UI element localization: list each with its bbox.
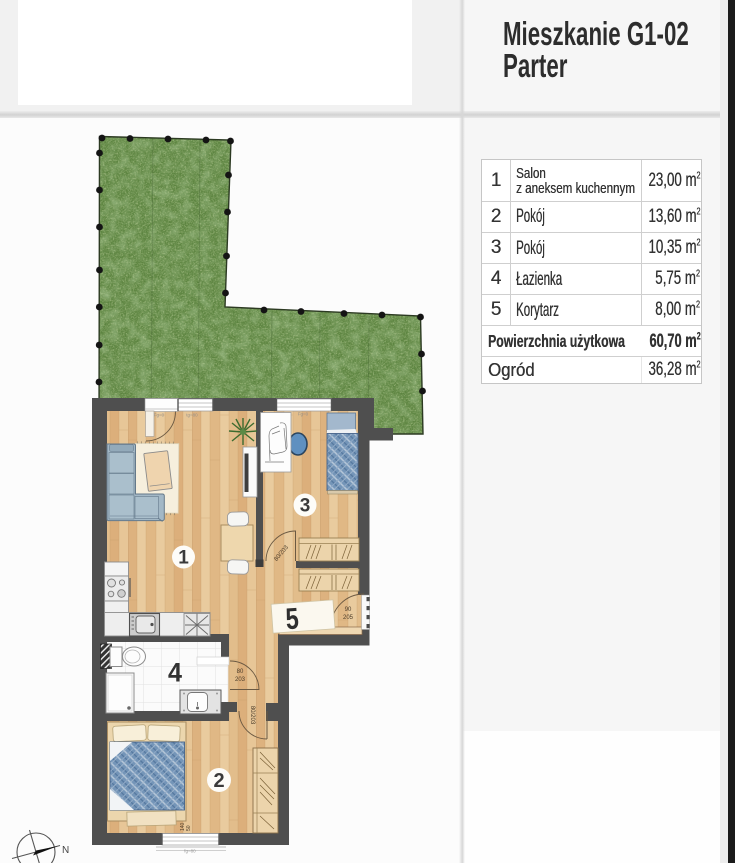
svg-text:80/203: 80/203 <box>249 706 255 725</box>
svg-text:Fg=0: Fg=0 <box>154 413 165 418</box>
svg-text:203: 203 <box>235 677 246 683</box>
svg-text:N: N <box>62 845 69 856</box>
svg-text:4: 4 <box>168 658 182 688</box>
svg-text:3: 3 <box>300 496 311 517</box>
svg-text:fg=80: fg=80 <box>184 849 196 854</box>
svg-text:5: 5 <box>285 602 300 636</box>
svg-text:205: 205 <box>343 615 354 621</box>
svg-text:80: 80 <box>237 669 244 675</box>
svg-text:1: 1 <box>178 548 189 569</box>
svg-text:Fg=0: Fg=0 <box>298 412 309 417</box>
svg-text:50: 50 <box>186 825 192 831</box>
svg-text:tg=80: tg=80 <box>186 413 198 418</box>
svg-text:90: 90 <box>345 607 352 613</box>
svg-text:2: 2 <box>213 770 224 792</box>
